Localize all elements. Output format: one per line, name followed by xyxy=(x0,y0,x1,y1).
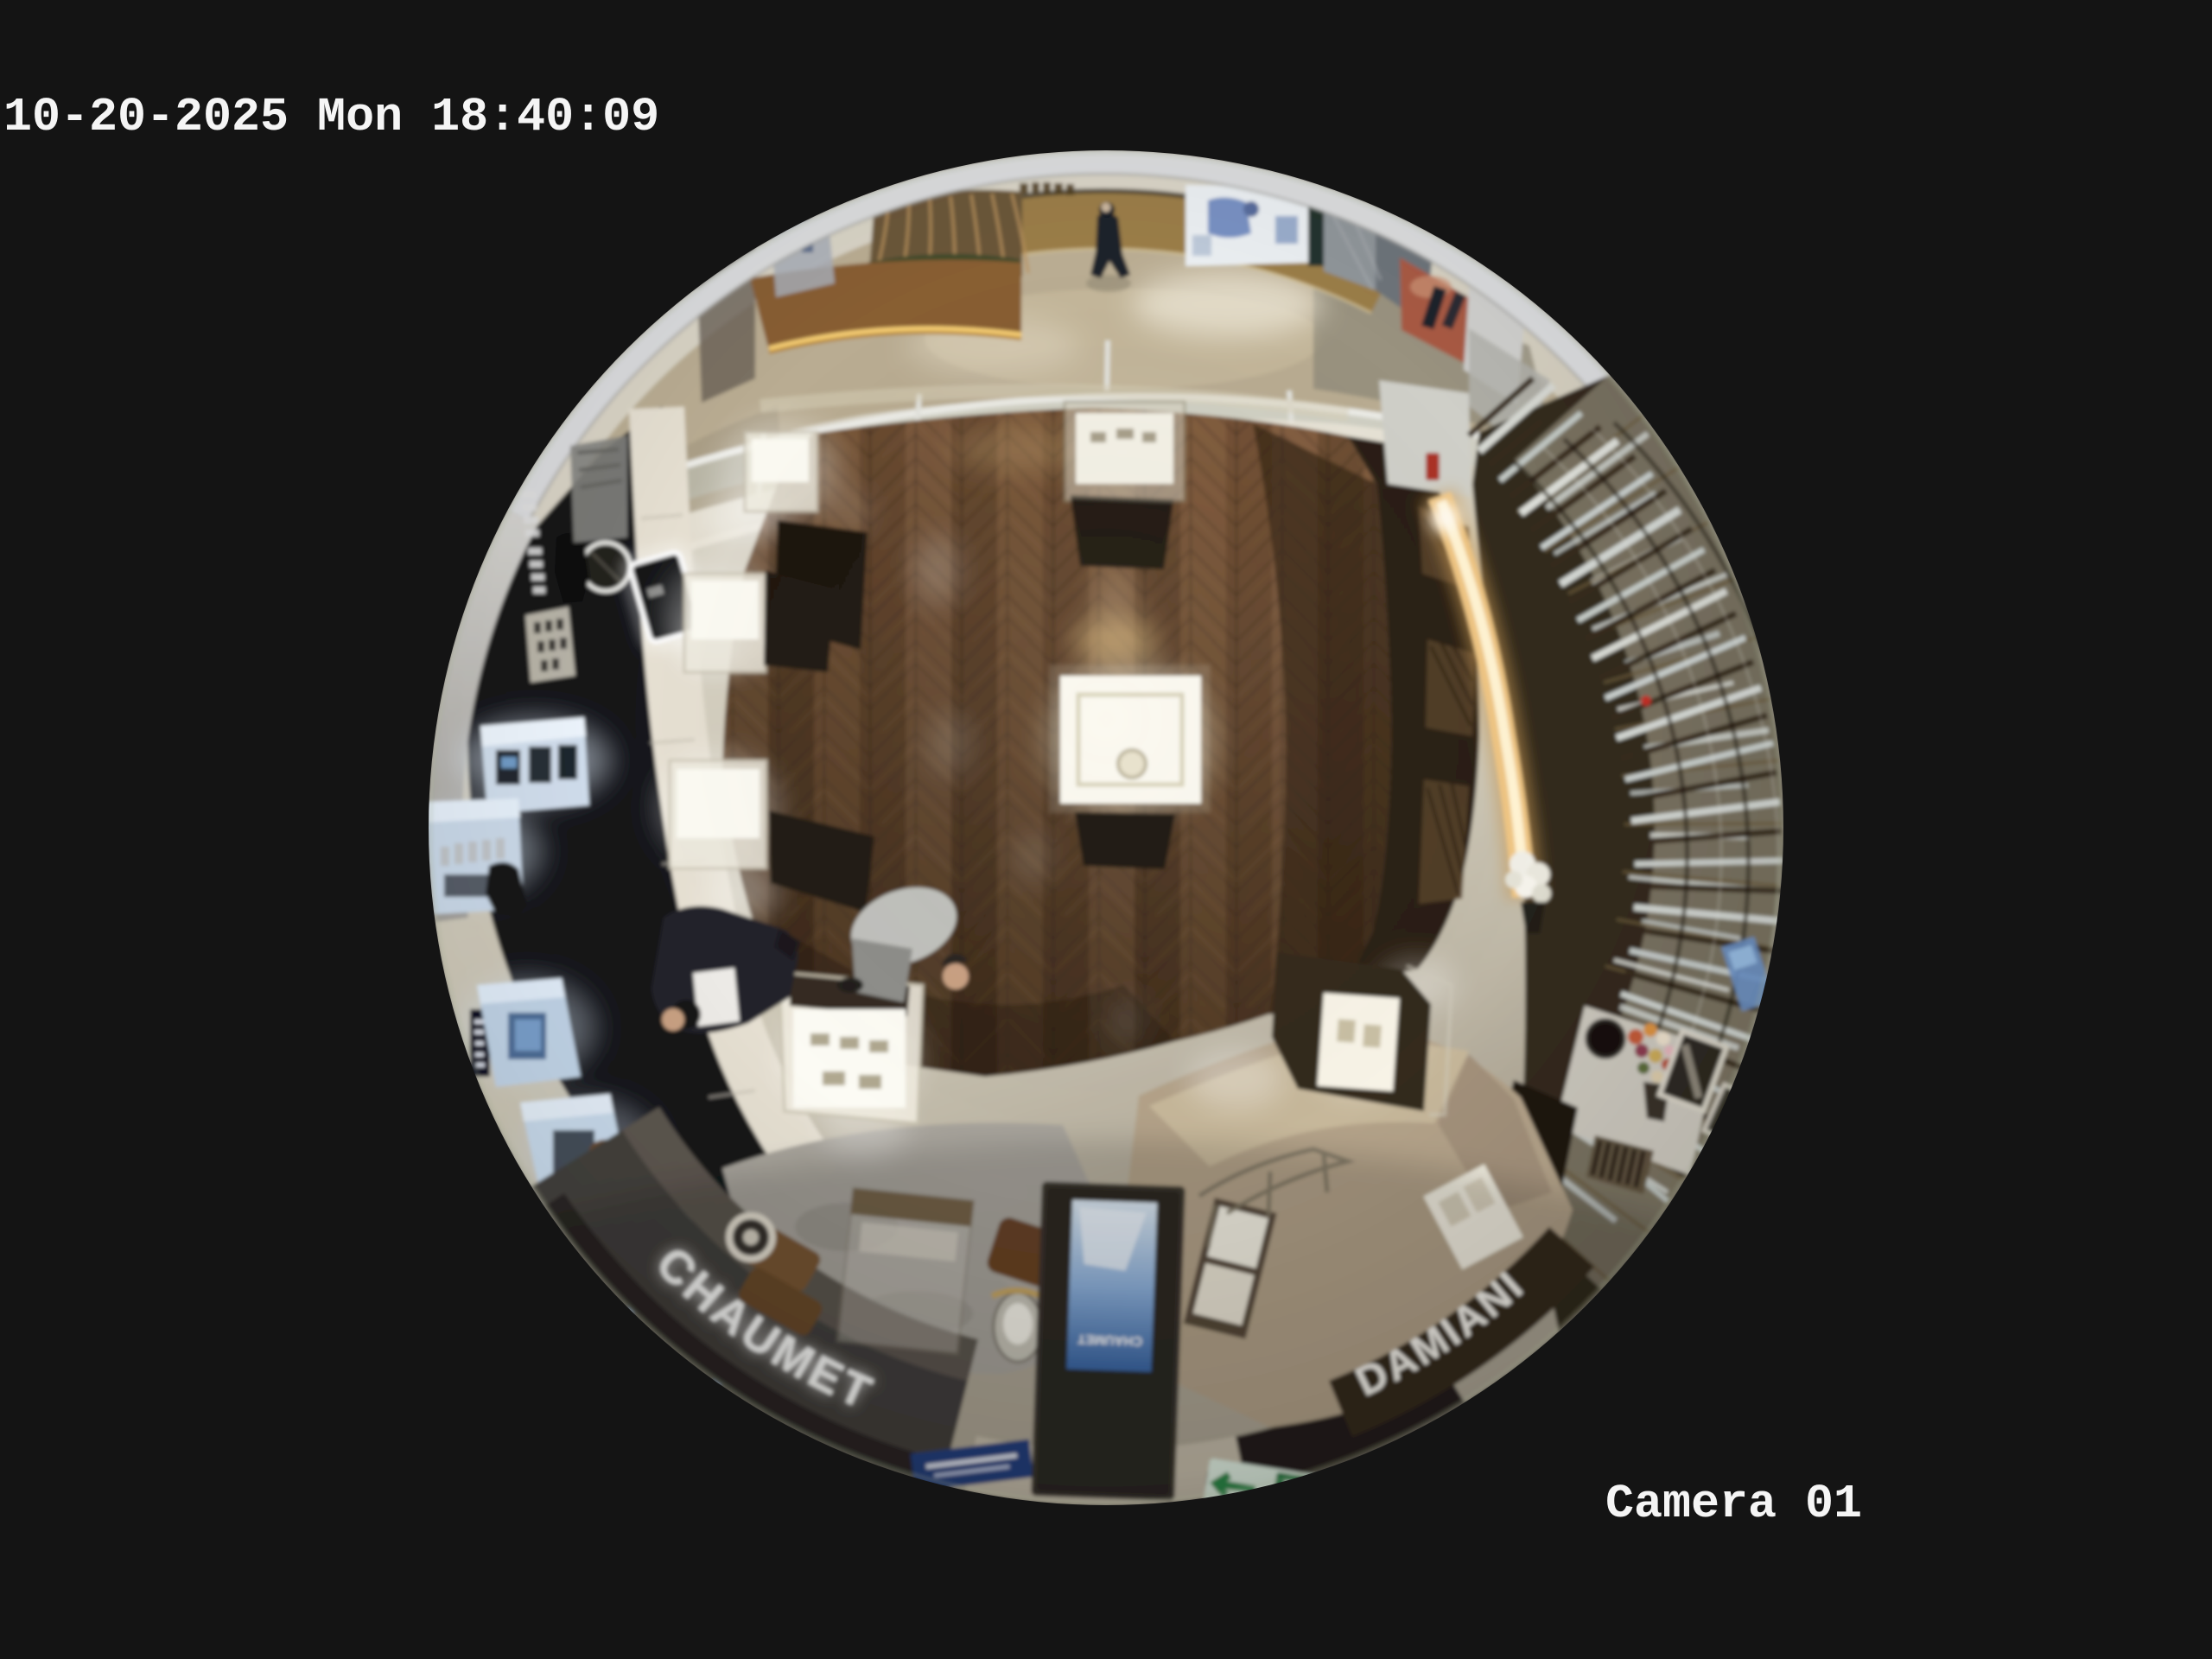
svg-text:10-20-2025 Mon 18:40:09: 10-20-2025 Mon 18:40:09 xyxy=(3,90,659,144)
svg-text:Camera 01: Camera 01 xyxy=(1605,1477,1862,1531)
